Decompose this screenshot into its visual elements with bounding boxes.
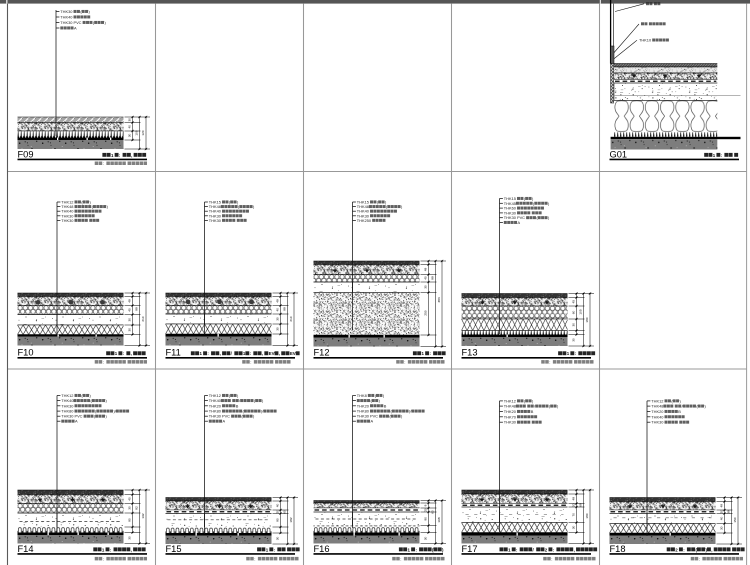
svg-text:30: 30 <box>128 506 132 510</box>
svg-text:F18: F18 <box>610 544 626 554</box>
svg-text:70: 70 <box>572 513 576 517</box>
svg-text:G01: G01 <box>610 149 628 159</box>
svg-text:192: 192 <box>141 513 145 518</box>
svg-text:THK30: THK30 <box>651 420 664 425</box>
svg-text:383: 383 <box>437 297 441 302</box>
svg-text:F11: F11 <box>166 348 181 358</box>
svg-text:,: , <box>711 547 712 552</box>
svg-text:210: 210 <box>289 316 293 321</box>
svg-text:THK30 PVC: THK30 PVC <box>209 414 230 419</box>
svg-text:THK30: THK30 <box>60 9 73 14</box>
svg-text:B: B <box>236 403 239 408</box>
svg-text:30: 30 <box>424 285 428 289</box>
svg-text:THK20: THK20 <box>504 409 517 414</box>
svg-text:48: 48 <box>572 497 576 501</box>
svg-text:,: , <box>131 547 132 552</box>
svg-text:180: 180 <box>585 317 589 322</box>
svg-text:182: 182 <box>289 517 293 522</box>
svg-text:THK250: THK250 <box>357 218 372 223</box>
svg-text:A: A <box>74 25 77 30</box>
svg-text:THK20: THK20 <box>209 403 222 408</box>
svg-text:210: 210 <box>141 316 145 321</box>
svg-text:,: , <box>131 351 132 356</box>
svg-text:30: 30 <box>572 323 576 327</box>
svg-text:68: 68 <box>579 503 583 507</box>
svg-text:20: 20 <box>572 503 576 507</box>
svg-text:THK40: THK40 <box>651 414 664 419</box>
svg-text:80: 80 <box>424 517 428 521</box>
svg-text::: : <box>699 556 700 561</box>
svg-text:30: 30 <box>128 536 132 540</box>
svg-text:48: 48 <box>276 299 280 303</box>
svg-text:THK30 PVC: THK30 PVC <box>60 20 81 25</box>
svg-text::: : <box>404 360 405 365</box>
svg-text::: : <box>103 360 104 365</box>
svg-text:30: 30 <box>720 526 724 530</box>
svg-text:38: 38 <box>727 510 731 514</box>
svg-text:THK20: THK20 <box>651 409 664 414</box>
svg-text:F17: F17 <box>462 544 478 554</box>
svg-text:THK30 PVC: THK30 PVC <box>61 414 82 419</box>
svg-text:THK10: THK10 <box>639 38 652 43</box>
svg-text:40: 40 <box>720 517 724 521</box>
svg-text:B: B <box>531 409 534 414</box>
svg-text::: : <box>551 556 552 561</box>
svg-text:THK30: THK30 <box>209 218 222 223</box>
svg-text:48: 48 <box>424 268 428 272</box>
svg-text:,: , <box>220 351 221 356</box>
svg-text:150: 150 <box>733 517 737 522</box>
svg-text:8: 8 <box>424 504 428 506</box>
svg-text:A: A <box>222 419 225 424</box>
svg-text:48: 48 <box>720 504 724 508</box>
svg-text:THK48: THK48 <box>504 404 516 409</box>
svg-text:,: , <box>279 351 280 356</box>
svg-text:,: , <box>262 351 263 356</box>
svg-text:THK30: THK30 <box>504 420 517 425</box>
svg-text:EV: EV <box>269 351 275 356</box>
svg-text:30: 30 <box>424 537 428 541</box>
svg-text:30: 30 <box>128 328 132 332</box>
svg-text:,: , <box>131 153 132 158</box>
svg-text:20: 20 <box>424 508 428 512</box>
svg-text:THK30: THK30 <box>61 403 74 408</box>
svg-text:60: 60 <box>283 510 287 514</box>
svg-text:THK8: THK8 <box>357 393 367 398</box>
svg-text:THK20: THK20 <box>357 403 370 408</box>
svg-text:88: 88 <box>135 307 139 311</box>
svg-text::: : <box>103 556 104 561</box>
svg-text:88: 88 <box>283 307 287 311</box>
svg-text:A: A <box>75 419 78 424</box>
svg-text:F16: F16 <box>314 544 330 554</box>
svg-text:F09: F09 <box>18 149 34 159</box>
svg-text:F10: F10 <box>18 348 34 358</box>
svg-text:EV: EV <box>290 351 296 356</box>
svg-text:100: 100 <box>135 130 139 135</box>
svg-text:168: 168 <box>437 517 441 522</box>
svg-text:F15: F15 <box>166 544 182 554</box>
svg-text:THK40: THK40 <box>60 14 73 19</box>
svg-text:F14: F14 <box>18 544 34 554</box>
svg-text:30: 30 <box>572 526 576 530</box>
svg-text:THK30: THK30 <box>61 218 74 223</box>
svg-text:82: 82 <box>135 506 139 510</box>
svg-text::: : <box>103 161 104 166</box>
svg-text:40: 40 <box>276 504 280 508</box>
svg-text:THK30 PVC: THK30 PVC <box>504 215 525 220</box>
svg-text:30: 30 <box>276 537 280 541</box>
svg-text:80: 80 <box>276 518 280 522</box>
svg-text:105: 105 <box>579 309 583 314</box>
svg-text:48: 48 <box>128 299 132 303</box>
svg-text:20: 20 <box>720 510 724 514</box>
svg-text:B: B <box>678 409 681 414</box>
svg-text::: : <box>400 556 401 561</box>
svg-text:,: , <box>574 547 575 552</box>
svg-text:THK48: THK48 <box>651 404 663 409</box>
svg-text:30: 30 <box>128 134 132 138</box>
svg-text:30: 30 <box>572 338 576 342</box>
svg-text:30: 30 <box>128 318 132 322</box>
svg-text:F12: F12 <box>314 348 330 358</box>
svg-text:F13: F13 <box>462 348 478 358</box>
svg-text::: : <box>254 556 255 561</box>
svg-text:30: 30 <box>276 327 280 331</box>
svg-text:B: B <box>384 403 387 408</box>
svg-text:40: 40 <box>424 276 428 280</box>
svg-text:THK70: THK70 <box>504 414 517 419</box>
svg-text:120: 120 <box>141 130 145 135</box>
svg-text::: : <box>250 360 251 365</box>
svg-text:THK30 PVC: THK30 PVC <box>357 414 378 419</box>
svg-text:A: A <box>370 419 373 424</box>
svg-text:60: 60 <box>572 311 576 315</box>
svg-text:40: 40 <box>128 125 132 129</box>
svg-text:40: 40 <box>276 308 280 312</box>
svg-text:180: 180 <box>585 513 589 518</box>
svg-text:30: 30 <box>276 317 280 321</box>
svg-text:60: 60 <box>431 510 435 514</box>
svg-text::: : <box>549 360 550 365</box>
svg-text:40: 40 <box>128 497 132 501</box>
svg-text:80: 80 <box>128 518 132 522</box>
svg-text:30: 30 <box>128 118 132 122</box>
svg-text:A: A <box>517 220 520 225</box>
svg-text:20: 20 <box>276 510 280 514</box>
svg-text:88: 88 <box>431 276 435 280</box>
svg-text:250: 250 <box>424 310 428 315</box>
svg-text:40: 40 <box>128 308 132 312</box>
svg-text:45: 45 <box>572 300 576 304</box>
